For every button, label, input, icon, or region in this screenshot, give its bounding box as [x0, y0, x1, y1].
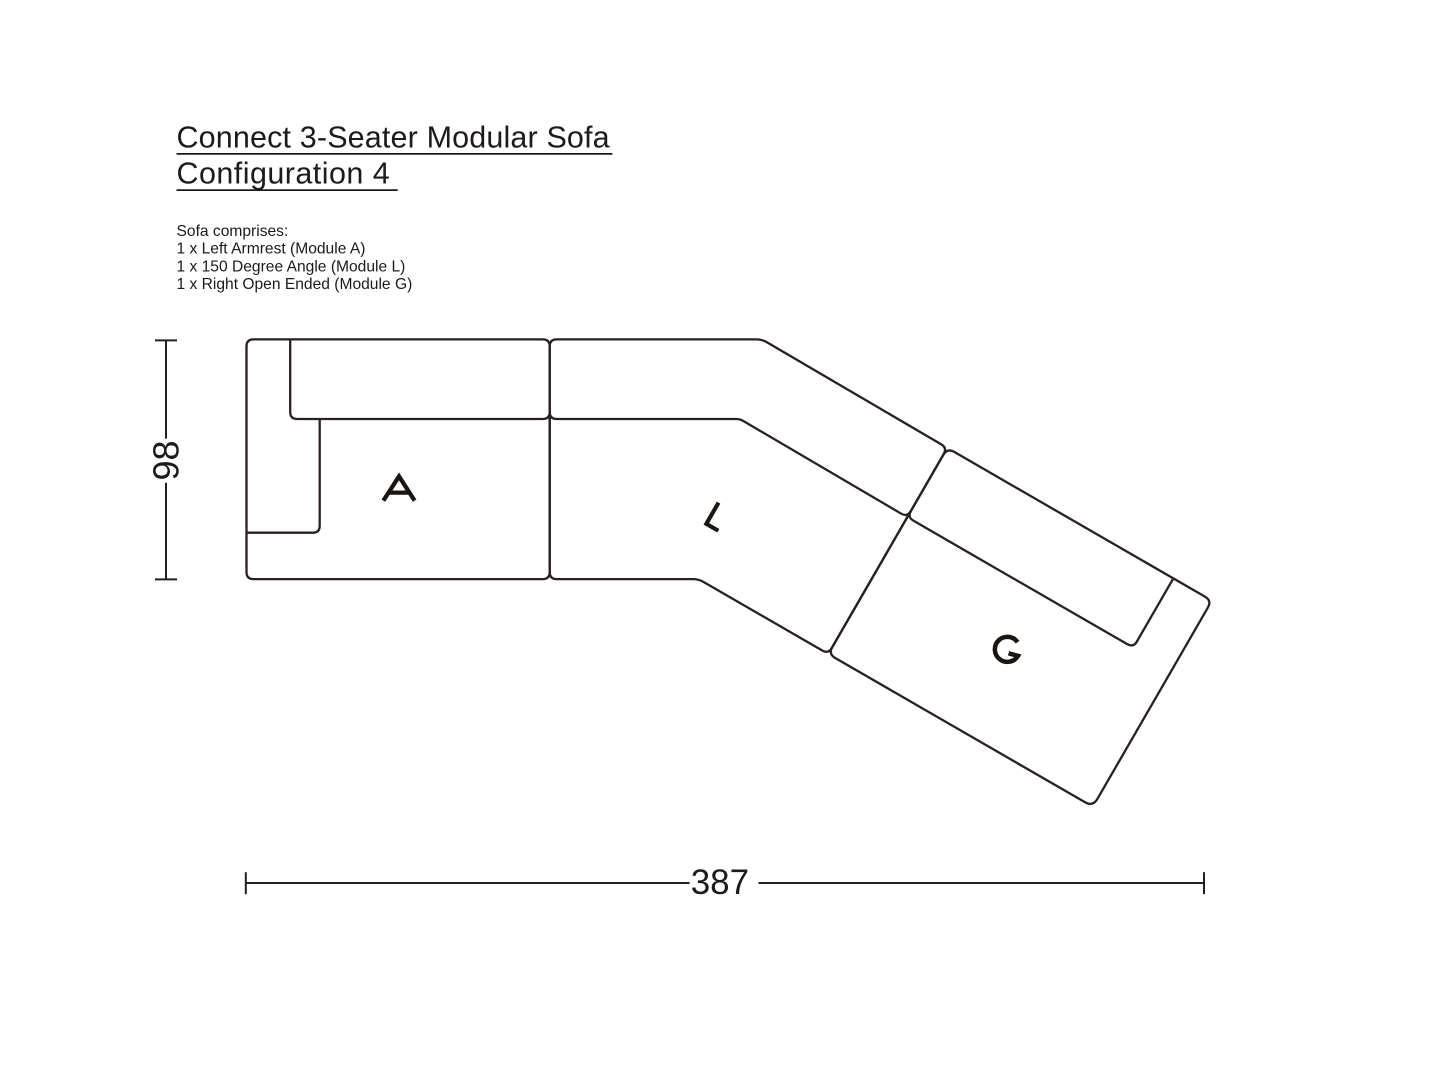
svg-text:1 x Right Open Ended (Module G: 1 x Right Open Ended (Module G) [177, 276, 413, 293]
svg-text:1 x 150 Degree Angle (Module L: 1 x 150 Degree Angle (Module L) [177, 258, 406, 275]
svg-text:Configuration 4: Configuration 4 [177, 157, 391, 191]
svg-text:1 x Left Armrest (Module A): 1 x Left Armrest (Module A) [177, 241, 366, 258]
svg-text:387: 387 [691, 863, 749, 902]
svg-text:Connect 3-Seater Modular Sofa: Connect 3-Seater Modular Sofa [177, 121, 610, 155]
svg-text:Sofa comprises:: Sofa comprises: [177, 223, 289, 240]
svg-text:98: 98 [146, 440, 187, 480]
